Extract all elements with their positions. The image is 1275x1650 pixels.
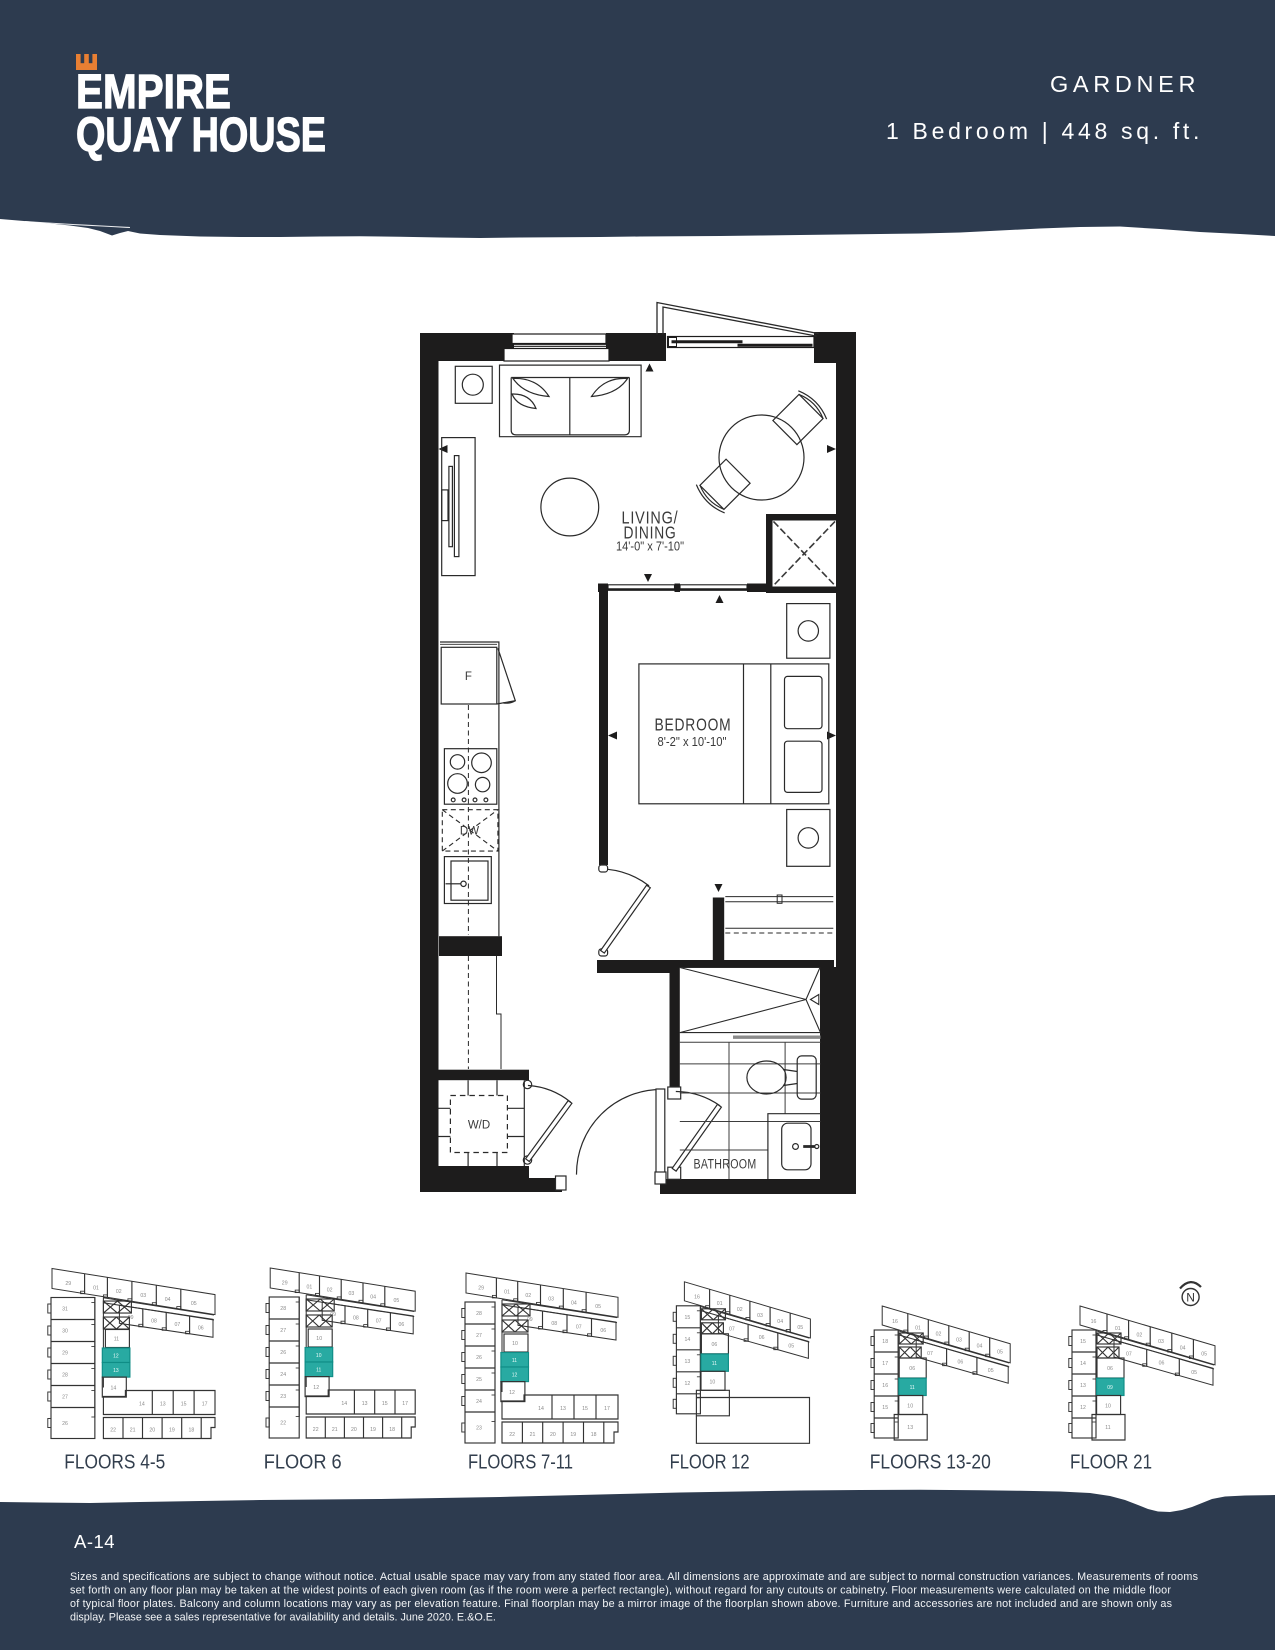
svg-text:BATHROOM: BATHROOM (694, 1157, 757, 1172)
svg-text:05: 05 (394, 1298, 400, 1304)
svg-text:21: 21 (332, 1427, 338, 1433)
svg-text:14: 14 (685, 1337, 691, 1343)
svg-text:FLOORS 13-20: FLOORS 13-20 (870, 1452, 991, 1474)
svg-text:Sizes and specifications are s: Sizes and specifications are subject to … (70, 1571, 1199, 1583)
svg-text:FLOORS 7-11: FLOORS 7-11 (468, 1452, 573, 1474)
svg-text:19: 19 (169, 1428, 175, 1434)
svg-text:15: 15 (882, 1405, 888, 1411)
svg-text:20: 20 (550, 1432, 556, 1438)
svg-text:03: 03 (1158, 1339, 1164, 1345)
svg-text:04: 04 (777, 1319, 783, 1325)
svg-text:display. Please see a sales re: display. Please see a sales representati… (70, 1612, 496, 1624)
svg-text:03: 03 (140, 1293, 146, 1299)
svg-text:07: 07 (927, 1351, 933, 1357)
svg-text:BEDROOM: BEDROOM (655, 715, 732, 735)
svg-text:04: 04 (977, 1344, 983, 1350)
svg-text:1 Bedroom | 448 sq. ft.: 1 Bedroom | 448 sq. ft. (886, 118, 1202, 144)
svg-text:02: 02 (936, 1332, 942, 1338)
svg-text:02: 02 (737, 1307, 743, 1313)
svg-text:04: 04 (165, 1297, 171, 1303)
svg-text:18: 18 (389, 1427, 395, 1433)
svg-text:02: 02 (525, 1293, 531, 1299)
svg-text:05: 05 (595, 1304, 601, 1310)
svg-text:12: 12 (685, 1381, 691, 1387)
svg-text:07: 07 (576, 1324, 582, 1330)
svg-text:10: 10 (316, 1353, 322, 1359)
svg-text:17: 17 (604, 1406, 610, 1412)
svg-text:06: 06 (759, 1335, 765, 1341)
svg-text:12: 12 (1080, 1405, 1086, 1411)
svg-text:13: 13 (907, 1425, 913, 1431)
svg-text:13: 13 (362, 1401, 368, 1407)
svg-text:F: F (465, 671, 472, 683)
svg-text:28: 28 (280, 1306, 286, 1312)
svg-text:01: 01 (1115, 1326, 1121, 1332)
svg-text:14: 14 (139, 1402, 145, 1408)
svg-text:06: 06 (909, 1366, 915, 1372)
svg-text:14: 14 (341, 1401, 347, 1407)
svg-text:05: 05 (1191, 1370, 1197, 1376)
svg-text:26: 26 (476, 1355, 482, 1361)
svg-text:18: 18 (591, 1432, 597, 1438)
svg-text:17: 17 (402, 1401, 408, 1407)
svg-text:26: 26 (62, 1421, 68, 1427)
svg-text:11: 11 (512, 1358, 517, 1364)
svg-text:10: 10 (316, 1336, 322, 1342)
svg-text:30: 30 (62, 1329, 68, 1335)
svg-text:14: 14 (111, 1386, 117, 1392)
svg-text:04: 04 (370, 1295, 376, 1301)
svg-text:22: 22 (509, 1432, 515, 1438)
svg-text:23: 23 (476, 1426, 482, 1432)
svg-text:FLOOR 6: FLOOR 6 (264, 1452, 342, 1474)
svg-text:15: 15 (382, 1401, 388, 1407)
svg-text:06: 06 (198, 1325, 204, 1331)
svg-text:15: 15 (685, 1315, 691, 1321)
svg-text:16: 16 (882, 1383, 888, 1389)
svg-text:04: 04 (571, 1300, 577, 1306)
svg-text:11: 11 (712, 1361, 717, 1367)
svg-text:10: 10 (710, 1379, 716, 1385)
svg-text:08: 08 (353, 1315, 359, 1321)
svg-text:20: 20 (149, 1428, 155, 1434)
svg-text:07: 07 (376, 1319, 382, 1325)
svg-text:10: 10 (907, 1404, 913, 1410)
svg-text:20: 20 (351, 1427, 357, 1433)
svg-text:A-14: A-14 (74, 1531, 115, 1552)
svg-text:22: 22 (110, 1428, 116, 1434)
svg-text:12: 12 (313, 1385, 319, 1391)
svg-text:04: 04 (1180, 1345, 1186, 1351)
svg-text:03: 03 (757, 1313, 763, 1319)
svg-text:16: 16 (892, 1319, 898, 1325)
svg-text:26: 26 (280, 1350, 286, 1356)
svg-text:07: 07 (1126, 1351, 1132, 1357)
svg-text:05: 05 (191, 1301, 197, 1307)
svg-text:27: 27 (62, 1395, 68, 1401)
svg-text:11: 11 (316, 1368, 321, 1374)
svg-text:01: 01 (93, 1286, 99, 1292)
svg-text:06: 06 (1159, 1361, 1165, 1367)
svg-text:29: 29 (478, 1285, 484, 1291)
svg-text:8'-2" x 10'-10": 8'-2" x 10'-10" (658, 735, 727, 749)
svg-text:03: 03 (349, 1291, 355, 1297)
svg-text:29: 29 (62, 1351, 68, 1357)
svg-text:06: 06 (712, 1342, 718, 1348)
svg-text:GARDNER: GARDNER (1050, 71, 1202, 97)
svg-text:02: 02 (116, 1289, 122, 1295)
svg-text:11: 11 (910, 1385, 915, 1391)
svg-text:24: 24 (280, 1372, 286, 1378)
svg-text:03: 03 (548, 1297, 554, 1303)
svg-text:21: 21 (130, 1428, 136, 1434)
svg-text:14'-0" x 7'-10": 14'-0" x 7'-10" (616, 540, 684, 554)
svg-text:15: 15 (582, 1406, 588, 1412)
svg-text:FLOOR 12: FLOOR 12 (670, 1452, 750, 1474)
svg-text:of typical floor plates. Balco: of typical floor plates. Balcony and col… (70, 1598, 1173, 1610)
svg-text:W/D: W/D (468, 1120, 490, 1132)
svg-text:FLOOR 21: FLOOR 21 (1070, 1452, 1152, 1474)
svg-text:08: 08 (551, 1321, 557, 1327)
svg-text:14: 14 (1080, 1361, 1086, 1367)
svg-text:01: 01 (307, 1284, 313, 1290)
svg-text:03: 03 (956, 1338, 962, 1344)
svg-text:16: 16 (1091, 1319, 1097, 1325)
svg-text:01: 01 (504, 1290, 510, 1296)
svg-text:07: 07 (729, 1327, 735, 1333)
svg-text:28: 28 (62, 1373, 68, 1379)
svg-text:16: 16 (694, 1295, 700, 1301)
svg-text:13: 13 (560, 1406, 566, 1412)
svg-text:set forth on any floor plan ma: set forth on any floor plan may be taken… (70, 1585, 1171, 1597)
svg-text:05: 05 (797, 1325, 803, 1331)
svg-text:18: 18 (189, 1428, 195, 1434)
svg-text:05: 05 (788, 1344, 794, 1350)
svg-text:10: 10 (512, 1341, 518, 1347)
svg-text:05: 05 (1201, 1352, 1207, 1358)
svg-text:17: 17 (882, 1361, 888, 1367)
svg-text:13: 13 (1080, 1383, 1086, 1389)
svg-text:17: 17 (202, 1402, 208, 1408)
svg-text:22: 22 (313, 1427, 319, 1433)
svg-text:27: 27 (280, 1328, 286, 1334)
svg-text:10: 10 (1105, 1404, 1111, 1410)
svg-text:25: 25 (476, 1377, 482, 1383)
svg-text:12: 12 (509, 1390, 515, 1396)
svg-text:06: 06 (600, 1328, 606, 1334)
svg-text:12: 12 (512, 1373, 518, 1379)
svg-text:06: 06 (1107, 1366, 1113, 1372)
svg-text:FLOORS 4-5: FLOORS 4-5 (64, 1452, 165, 1474)
svg-text:05: 05 (988, 1368, 994, 1374)
svg-text:06: 06 (399, 1322, 405, 1328)
svg-text:18: 18 (882, 1339, 888, 1345)
svg-text:21: 21 (530, 1432, 536, 1438)
svg-text:19: 19 (370, 1427, 376, 1433)
svg-text:31: 31 (62, 1307, 68, 1313)
svg-text:14: 14 (538, 1406, 544, 1412)
svg-text:06: 06 (958, 1360, 964, 1366)
svg-text:02: 02 (1137, 1333, 1143, 1339)
svg-text:13: 13 (160, 1402, 166, 1408)
svg-text:27: 27 (476, 1333, 482, 1339)
svg-text:01: 01 (717, 1301, 723, 1307)
svg-text:24: 24 (476, 1399, 482, 1405)
svg-text:09: 09 (1107, 1385, 1113, 1391)
svg-text:11: 11 (114, 1337, 119, 1343)
svg-text:13: 13 (685, 1359, 691, 1365)
svg-text:11: 11 (1105, 1425, 1110, 1431)
svg-text:12: 12 (113, 1354, 119, 1360)
svg-text:28: 28 (476, 1311, 482, 1317)
svg-text:19: 19 (570, 1432, 576, 1438)
svg-text:02: 02 (327, 1288, 333, 1294)
svg-text:08: 08 (151, 1319, 157, 1325)
svg-text:29: 29 (65, 1281, 71, 1287)
svg-text:15: 15 (1080, 1339, 1086, 1345)
svg-text:22: 22 (280, 1421, 286, 1427)
svg-text:05: 05 (997, 1350, 1003, 1356)
svg-text:23: 23 (280, 1394, 286, 1400)
svg-text:QUAY HOUSE: QUAY HOUSE (76, 108, 326, 162)
svg-text:07: 07 (175, 1322, 181, 1328)
svg-text:01: 01 (915, 1326, 921, 1332)
svg-text:15: 15 (181, 1402, 187, 1408)
svg-text:DW: DW (460, 826, 479, 838)
svg-text:13: 13 (113, 1368, 119, 1374)
svg-text:N: N (1186, 1291, 1195, 1305)
svg-text:29: 29 (282, 1280, 288, 1286)
